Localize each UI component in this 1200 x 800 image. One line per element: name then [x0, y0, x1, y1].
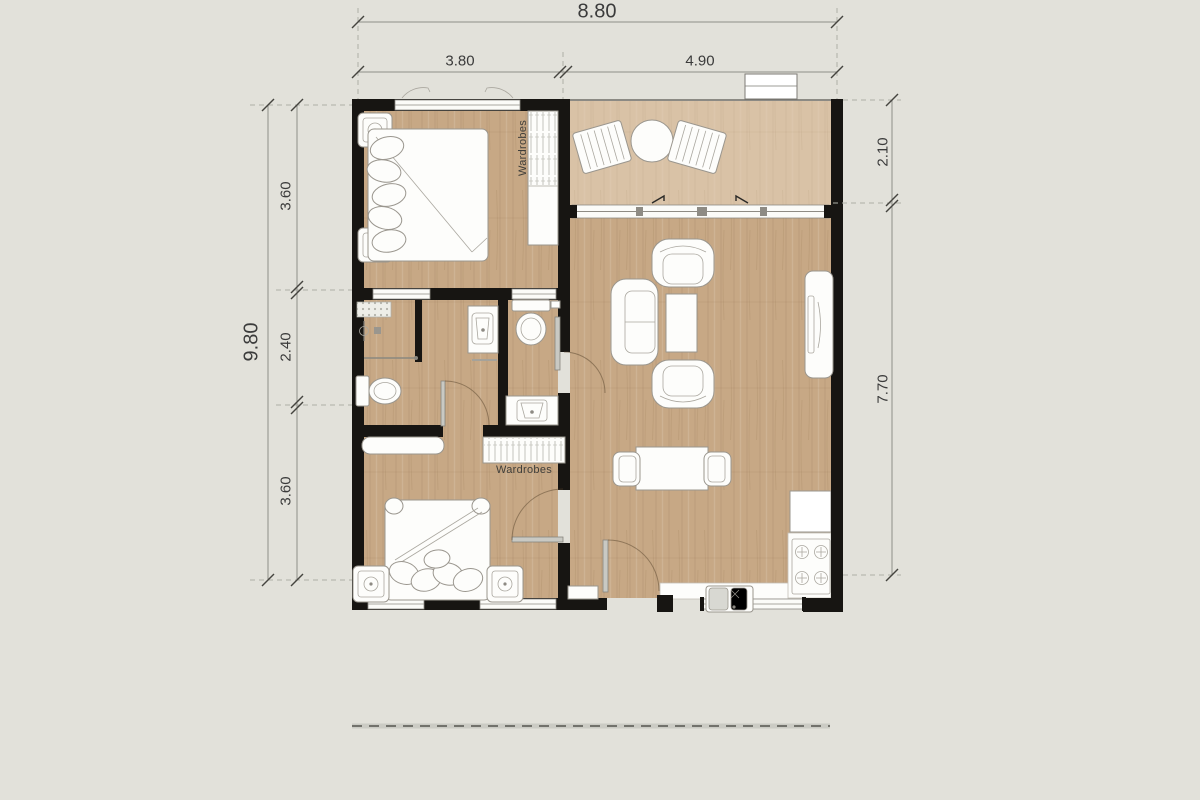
dim-label-top-segment-2: 4.90	[685, 53, 714, 70]
dim-label-top-segment-1: 3.80	[445, 53, 474, 70]
dim-label-right-segment-1: 2.10	[875, 137, 892, 166]
dim-label-left-overall: 9.80	[241, 323, 264, 362]
tv-console-icon	[805, 271, 833, 378]
armchair-icon	[652, 239, 714, 287]
dim-label-top-overall: 8.80	[578, 1, 617, 24]
toilet-icon	[356, 376, 401, 406]
dining-table-icon	[613, 447, 731, 490]
window-bedroom1-icon	[395, 88, 520, 110]
wardrobe-bedroom2-icon	[483, 437, 565, 463]
sofa-icon	[611, 279, 658, 365]
armchair-icon	[652, 360, 714, 408]
balcony-table-icon	[631, 120, 673, 162]
dim-label-left-segment-1: 3.60	[278, 181, 295, 210]
vanity-sink-icon	[468, 306, 498, 360]
kitchen-sink-icon	[706, 586, 753, 612]
dim-label-right-segment-2: 7.70	[875, 374, 892, 403]
nightstand-lamp-icon	[353, 566, 389, 602]
shower-mat-icon	[357, 302, 391, 317]
ac-unit-icon	[745, 74, 797, 99]
dim-label-left-segment-3: 3.60	[278, 476, 295, 505]
floor-plan-page: 8.80 3.80 4.90 9.80 3.60 2.40 3.60 2.10 …	[0, 0, 1200, 800]
shoe-cabinet-icon	[568, 586, 598, 599]
coffee-table-icon	[666, 294, 697, 352]
desk-icon	[362, 437, 444, 454]
dim-label-left-segment-2: 2.40	[278, 332, 295, 361]
wardrobe-label-bedroom1: Wardrobes	[517, 120, 529, 176]
wardrobe-bedroom1-icon	[528, 111, 558, 245]
nightstand-lamp-icon	[487, 566, 523, 602]
wardrobe-label-bedroom2: Wardrobes	[496, 464, 552, 476]
double-bed-icon	[365, 129, 488, 261]
floor-plan-drawing	[0, 0, 1200, 800]
vanity-sink-icon	[506, 396, 558, 425]
double-bed-icon	[385, 498, 490, 600]
fridge-icon	[790, 491, 831, 532]
